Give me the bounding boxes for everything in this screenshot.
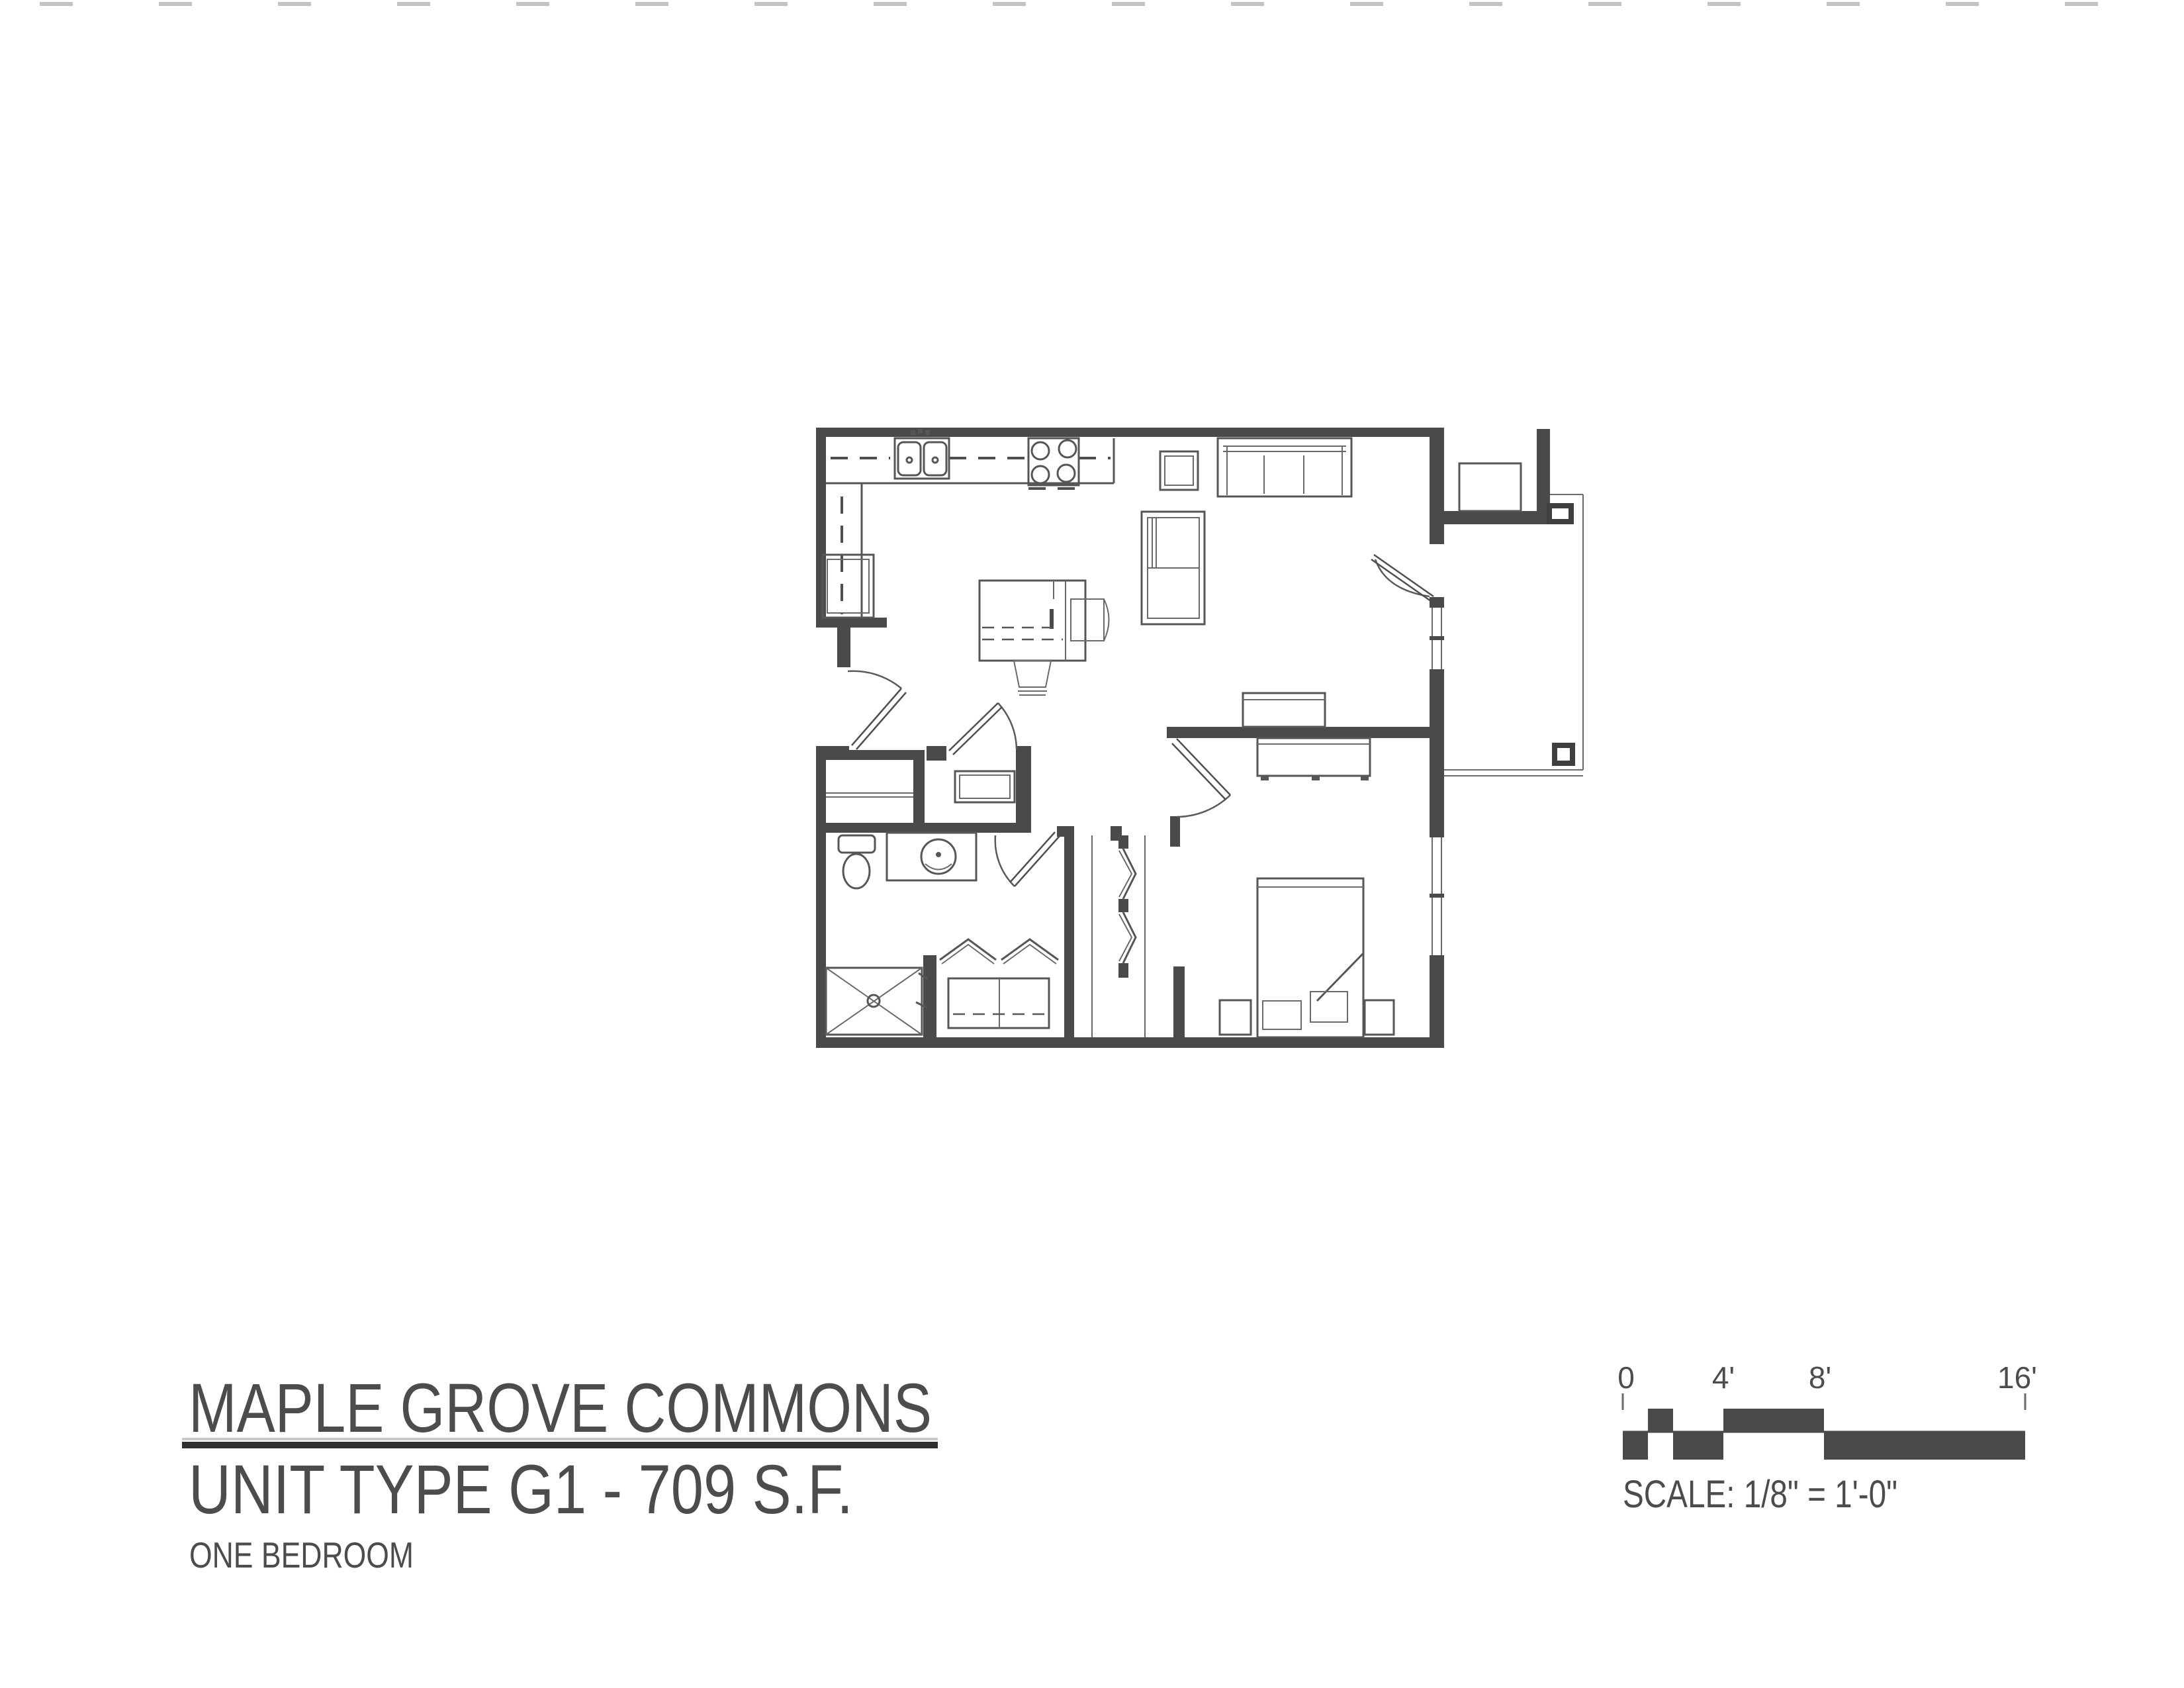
wall-bifold-stub-b xyxy=(1118,899,1128,912)
wall-left-upper xyxy=(816,428,826,628)
title-underline xyxy=(182,1442,938,1448)
wall-bathroom-right xyxy=(1064,829,1074,1048)
scale-bar-segment xyxy=(1648,1409,1673,1432)
floor-plan-drawing: MAPLE GROVE COMMONS UNIT TYPE G1 - 709 S… xyxy=(0,0,2184,1688)
faucet-icon xyxy=(925,430,930,435)
vanity-sink xyxy=(887,833,976,880)
linen-closet-bifold-doors xyxy=(940,939,1058,964)
sofa xyxy=(1218,438,1351,496)
wall-left-lower xyxy=(816,746,826,1048)
linen-closet xyxy=(948,978,1049,1028)
dining-table xyxy=(979,581,1085,661)
wall-closets-bottom xyxy=(816,823,1031,833)
shelf-armchair xyxy=(1142,512,1205,624)
wall-alcove-horizontal xyxy=(1444,511,1552,524)
wall-counter-cap xyxy=(816,618,887,628)
faucet-icon xyxy=(911,430,915,435)
dining-stool xyxy=(1014,661,1051,695)
wall-east-upper xyxy=(1430,428,1444,544)
pillow xyxy=(1263,1001,1301,1029)
wall-shower-stub xyxy=(923,955,936,1037)
scale-bar-segment xyxy=(1623,1432,1648,1460)
dresser xyxy=(1257,738,1370,780)
coat-closet-shelf xyxy=(826,793,913,797)
floor-plan-sheet: MAPLE GROVE COMMONS UNIT TYPE G1 - 709 S… xyxy=(0,0,2184,1688)
dining-chair xyxy=(1071,599,1109,641)
scale-bar-segment xyxy=(1673,1432,1723,1460)
unit-type-label: UNIT TYPE G1 - 709 S.F. xyxy=(189,1451,853,1528)
window-cap xyxy=(1430,955,1444,959)
wall-entry-jamb-top xyxy=(837,628,850,667)
media-desk xyxy=(1243,693,1325,727)
scale-tick-8: 8' xyxy=(1809,1360,1831,1395)
project-title: MAPLE GROVE COMMONS xyxy=(189,1370,932,1447)
unit-subtitle: ONE BEDROOM xyxy=(189,1534,414,1575)
scale-bar-segment xyxy=(1723,1409,1824,1432)
scale-bar: 0 4' 8' 16' SCALE: 1/8" = 1'-0" xyxy=(1617,1360,2037,1516)
living-room-window xyxy=(1430,608,1444,669)
wall-bifold-stub-a xyxy=(1118,835,1128,849)
pillow xyxy=(1310,992,1347,1022)
nightstand-right xyxy=(1365,1000,1394,1035)
wall-east-mid xyxy=(1430,673,1444,837)
bathroom-door xyxy=(995,832,1060,886)
wall-east-lower xyxy=(1430,959,1444,1048)
window-cap xyxy=(1430,669,1444,673)
scale-bar-segment xyxy=(1824,1432,2025,1460)
patio-column-south xyxy=(1555,745,1572,763)
patio xyxy=(1444,494,1583,776)
nightstand-left xyxy=(1220,1000,1251,1035)
patio-door xyxy=(1371,555,1433,601)
wall-top xyxy=(816,428,1444,437)
scale-caption: SCALE: 1/8" = 1'-0" xyxy=(1623,1473,1897,1516)
faucet-icon xyxy=(918,429,923,434)
toilet xyxy=(839,835,875,888)
bedroom-door xyxy=(1172,739,1230,817)
bedroom-closet-lines xyxy=(1092,835,1145,1037)
scale-tick-0: 0 xyxy=(1617,1360,1635,1395)
patio-column-north xyxy=(1549,506,1571,522)
water-heater xyxy=(955,771,1015,802)
wall-mech-door-jamb-left xyxy=(927,746,946,761)
bed xyxy=(1257,878,1363,1037)
window-cap xyxy=(1430,604,1444,608)
title-block: MAPLE GROVE COMMONS UNIT TYPE G1 - 709 S… xyxy=(182,1370,938,1575)
entry-door xyxy=(848,671,906,749)
window-cap xyxy=(1430,834,1444,837)
wall-bedroom-closet xyxy=(1173,966,1185,1048)
wall-bedroom-door-jamb xyxy=(1170,816,1180,847)
shower-stall xyxy=(826,968,927,1035)
refrigerator xyxy=(823,555,874,618)
title-underline-shadow xyxy=(182,1438,938,1440)
wall-bottom xyxy=(816,1037,1444,1048)
scale-tick-16: 16' xyxy=(1997,1360,2037,1395)
wall-between-closets xyxy=(913,750,925,833)
bedroom-window xyxy=(1430,837,1444,955)
wall-coat-closet-top xyxy=(849,750,915,760)
wall-bifold-stub-c xyxy=(1118,963,1128,978)
wall-mech-closet-right xyxy=(1016,746,1031,833)
side-table xyxy=(1160,451,1198,490)
kitchen-range xyxy=(1028,438,1079,485)
entry-bench xyxy=(1459,463,1521,511)
wall-living-bedroom-divider xyxy=(1167,727,1444,738)
mechanical-closet-door xyxy=(949,703,1017,755)
scale-tick-4: 4' xyxy=(1712,1360,1735,1395)
